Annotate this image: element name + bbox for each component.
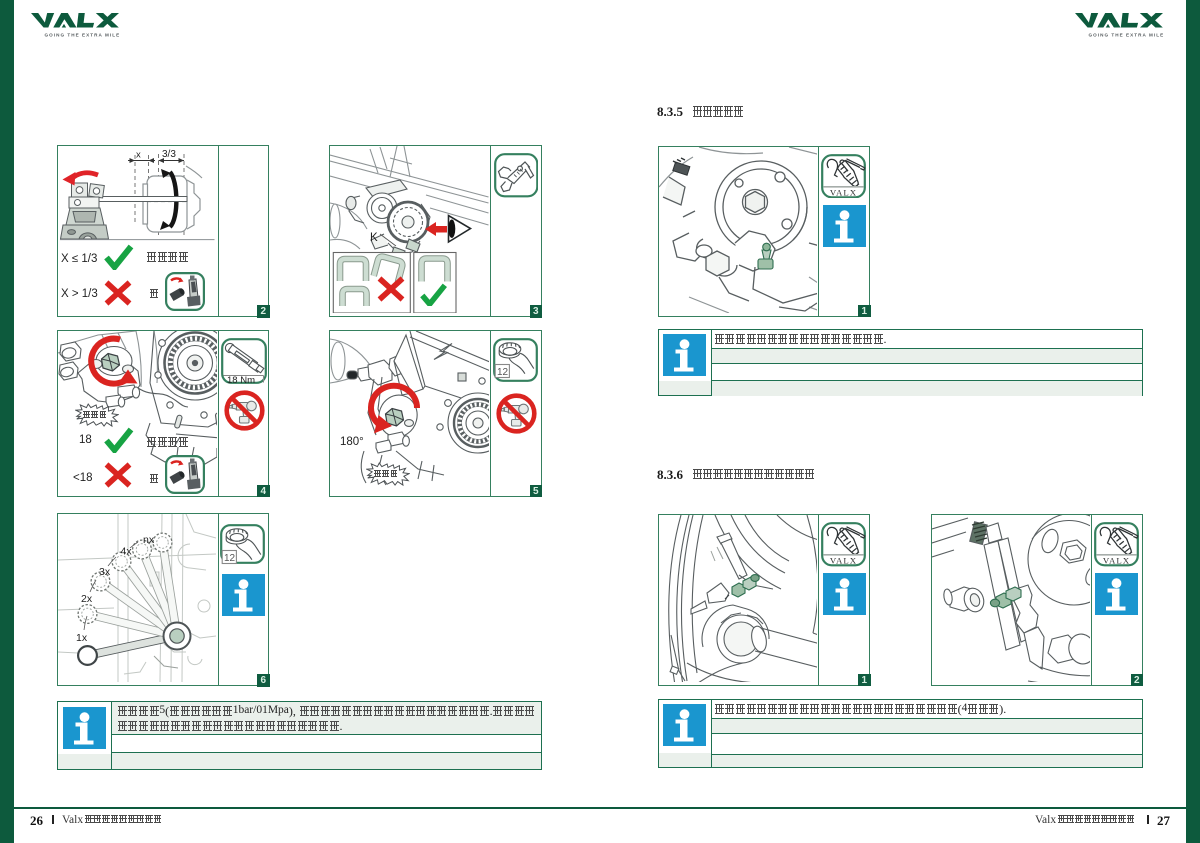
svg-text:180°: 180° <box>340 436 364 448</box>
svg-text:3/3: 3/3 <box>162 149 176 160</box>
svg-text:12: 12 <box>224 553 236 564</box>
svg-text:2x: 2x <box>81 593 93 605</box>
svg-text:GOING THE EXTRA MILE: GOING THE EXTRA MILE <box>45 33 121 38</box>
svg-text:VALX: VALX <box>1103 555 1130 565</box>
svg-text:X ≤ 1/3: X ≤ 1/3 <box>61 253 97 265</box>
svg-text:GOING THE EXTRA MILE: GOING THE EXTRA MILE <box>1089 33 1165 38</box>
svg-text:x: x <box>136 150 141 161</box>
svg-text:18 Nm: 18 Nm <box>227 375 255 384</box>
svg-text:VALX: VALX <box>830 187 857 197</box>
svg-text:X > 1/3: X > 1/3 <box>61 288 98 300</box>
svg-text:3x: 3x <box>99 566 111 578</box>
svg-text:nx: nx <box>143 534 155 546</box>
svg-text:12: 12 <box>497 367 509 378</box>
svg-text:1x: 1x <box>76 632 88 644</box>
svg-text:VALX: VALX <box>830 555 857 565</box>
